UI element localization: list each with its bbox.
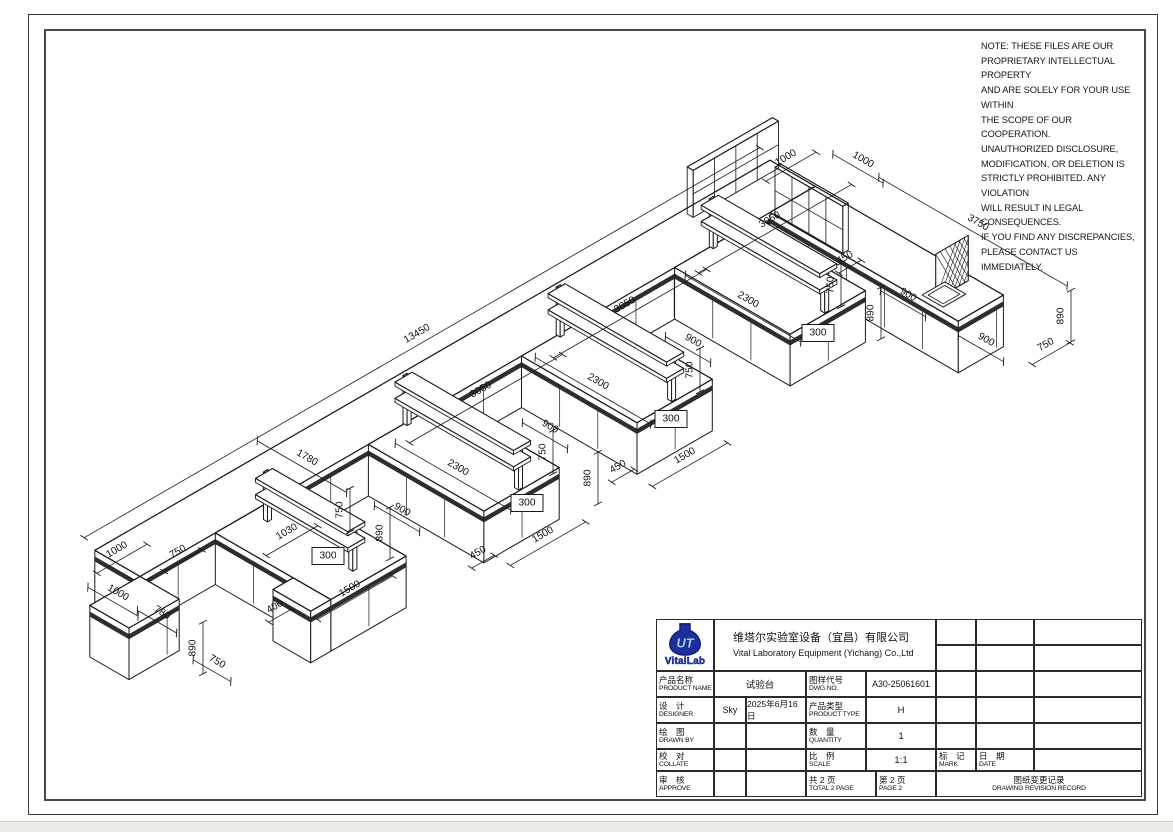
dimension-label: 300	[519, 498, 536, 509]
note-line: PLEASE CONTACT US IMMEDIATELY.	[981, 245, 1139, 274]
dimension-label: 750	[1036, 336, 1057, 354]
total-page-cell: 共 2 页 TOTAL 2 PAGE	[806, 771, 876, 797]
note-line: WILL RESULT IN LEGAL CONSEQUENCES.	[981, 201, 1139, 230]
label-en: DATE	[979, 761, 1031, 769]
dimension-label: 890	[866, 304, 877, 321]
quantity-label: 数 量 QUANTITY	[806, 723, 866, 749]
product-name-label: 产品名称 PRODUCT NAME	[656, 671, 714, 697]
quantity-value: 1	[866, 723, 936, 749]
dimension-label: 1000	[773, 147, 798, 168]
label-cn: 第 2 页	[879, 775, 933, 785]
revision-cell	[976, 645, 1034, 671]
empty-cell	[746, 749, 806, 771]
note-line: MODIFICATION, OR DELETION IS	[981, 157, 1139, 172]
dimension-label: 750	[685, 361, 696, 378]
label-en: DWG.NO.	[809, 685, 863, 693]
svg-text:UT: UT	[677, 636, 695, 651]
collate-label: 校 对 COLLATE	[656, 749, 714, 771]
label-en: DRAWN BY	[659, 737, 711, 745]
label-cn: 产品名称	[659, 675, 711, 685]
mark-label: 标 记 MARK	[936, 749, 976, 771]
label-en: PRODUCT NAME	[659, 685, 711, 693]
revision-cell	[976, 723, 1034, 749]
label-en: APPROVE	[659, 785, 711, 793]
note-line: IF YOU FIND ANY DISCREPANCIES,	[981, 230, 1139, 245]
label-cn: 图纸变更记录	[1013, 775, 1064, 785]
revision-cell	[1034, 645, 1142, 671]
drawing-sheet: 1345030503050305015001500150045045045010…	[0, 0, 1173, 831]
logo-wordmark: VitalLab	[665, 656, 705, 667]
label-cn: 审 核	[659, 775, 711, 785]
title-block: UT VitalLab 维塔尔实验室设备（宜昌）有限公司 Vital Labor…	[656, 619, 1142, 797]
label-en: DESIGNER	[659, 711, 711, 719]
empty-cell	[746, 723, 806, 749]
designer-label: 设 计 DESIGNER	[656, 697, 714, 723]
note-line: NOTE: THESE FILES ARE OUR	[981, 39, 1139, 54]
dwg-no-value: A30-25061601	[866, 671, 936, 697]
label-cn: 图样代号	[809, 675, 863, 685]
bench-geometry	[90, 118, 1004, 680]
designer-value: Sky	[714, 697, 746, 723]
label-cn: 设 计	[659, 701, 711, 711]
dimension-label: 300	[663, 414, 680, 425]
label-en: DRAWING REVISION RECORD	[992, 785, 1086, 793]
label-en: COLLATE	[659, 761, 711, 769]
revision-cell	[936, 671, 976, 697]
note-line: AND ARE SOLELY FOR YOUR USE WITHIN	[981, 83, 1139, 112]
note-line: UNAUTHORIZED DISCLOSURE,	[981, 142, 1139, 157]
scale-label: 比 例 SCALE	[806, 749, 866, 771]
approve-value	[714, 771, 746, 797]
bottom-scrollbar-area	[0, 821, 1173, 832]
revision-cell	[936, 619, 976, 645]
approve-label: 审 核 APPROVE	[656, 771, 714, 797]
label-en: SCALE	[809, 761, 863, 769]
label-en: PRODUCT TYPE	[809, 711, 863, 719]
label-en: MARK	[939, 761, 973, 769]
revision-cell	[936, 723, 976, 749]
label-cn: 比 例	[809, 751, 863, 761]
revision-cell	[936, 645, 976, 671]
company-name-cn: 维塔尔实验室设备（宜昌）有限公司	[733, 631, 935, 646]
product-name-value: 试验台	[714, 671, 806, 697]
collate-value	[714, 749, 746, 771]
note-line: THE SCOPE OF OUR COOPERATION.	[981, 113, 1139, 142]
label-en: QUANTITY	[809, 737, 863, 745]
flask-logo-icon: UT	[662, 622, 708, 656]
product-type-label: 产品类型 PRODUCT TYPE	[806, 697, 866, 723]
empty-cell	[746, 771, 806, 797]
drawn-by-label: 绘 图 DRAWN BY	[656, 723, 714, 749]
dimension-label: 13450	[402, 322, 432, 346]
label-cn: 标 记	[939, 751, 973, 761]
dwg-no-label: 图样代号 DWG.NO.	[806, 671, 866, 697]
revision-cell	[1034, 749, 1142, 771]
revision-cell	[936, 697, 976, 723]
revision-cell	[1034, 697, 1142, 723]
dimension-label: 300	[810, 328, 827, 339]
revision-cell	[976, 619, 1034, 645]
dimension-label: 890	[375, 524, 386, 541]
company-name-cell: 维塔尔实验室设备（宜昌）有限公司 Vital Laboratory Equipm…	[714, 619, 936, 671]
product-type-value: H	[866, 697, 936, 723]
dimension-label: 890	[1056, 307, 1067, 324]
revision-cell	[1034, 671, 1142, 697]
revision-cell	[976, 671, 1034, 697]
label-en: TOTAL 2 PAGE	[809, 785, 873, 793]
page-cell: 第 2 页 PAGE 2	[876, 771, 936, 797]
label-en: PAGE 2	[879, 785, 933, 793]
company-logo: UT VitalLab	[656, 619, 714, 671]
company-name-en: Vital Laboratory Equipment (Yichang) Co.…	[733, 646, 935, 660]
scale-value: 1:1	[866, 749, 936, 771]
dimension-label: 750	[335, 501, 346, 518]
label-cn: 日 期	[979, 751, 1031, 761]
design-date-value: 2025年6月16日	[746, 697, 806, 723]
label-cn: 绘 图	[659, 727, 711, 737]
dimension-label: 900	[683, 332, 704, 350]
revision-record-cell: 图纸变更记录 DRAWING REVISION RECORD	[936, 771, 1142, 797]
label-cn: 共 2 页	[809, 775, 873, 785]
dimension-label: 890	[583, 469, 594, 486]
dimension-label: 750	[538, 443, 549, 460]
dimension-label: 750	[826, 276, 837, 293]
dimension-label: 300	[320, 551, 337, 562]
revision-cell	[976, 697, 1034, 723]
note-line: STRICTLY PROHIBITED. ANY VIOLATION	[981, 171, 1139, 200]
label-cn: 产品类型	[809, 701, 863, 711]
dimension-label: 750	[207, 653, 228, 671]
revision-cell	[1034, 619, 1142, 645]
drawn-by-value	[714, 723, 746, 749]
dimension-label: 890	[188, 639, 199, 656]
label-cn: 校 对	[659, 751, 711, 761]
dimension-label: 1000	[850, 150, 875, 171]
note-line: PROPRIETARY INTELLECTUAL PROPERTY	[981, 54, 1139, 83]
date-label: 日 期 DATE	[976, 749, 1034, 771]
revision-cell	[1034, 723, 1142, 749]
label-cn: 数 量	[809, 727, 863, 737]
proprietary-note: NOTE: THESE FILES ARE OUR PROPRIETARY IN…	[981, 39, 1139, 274]
